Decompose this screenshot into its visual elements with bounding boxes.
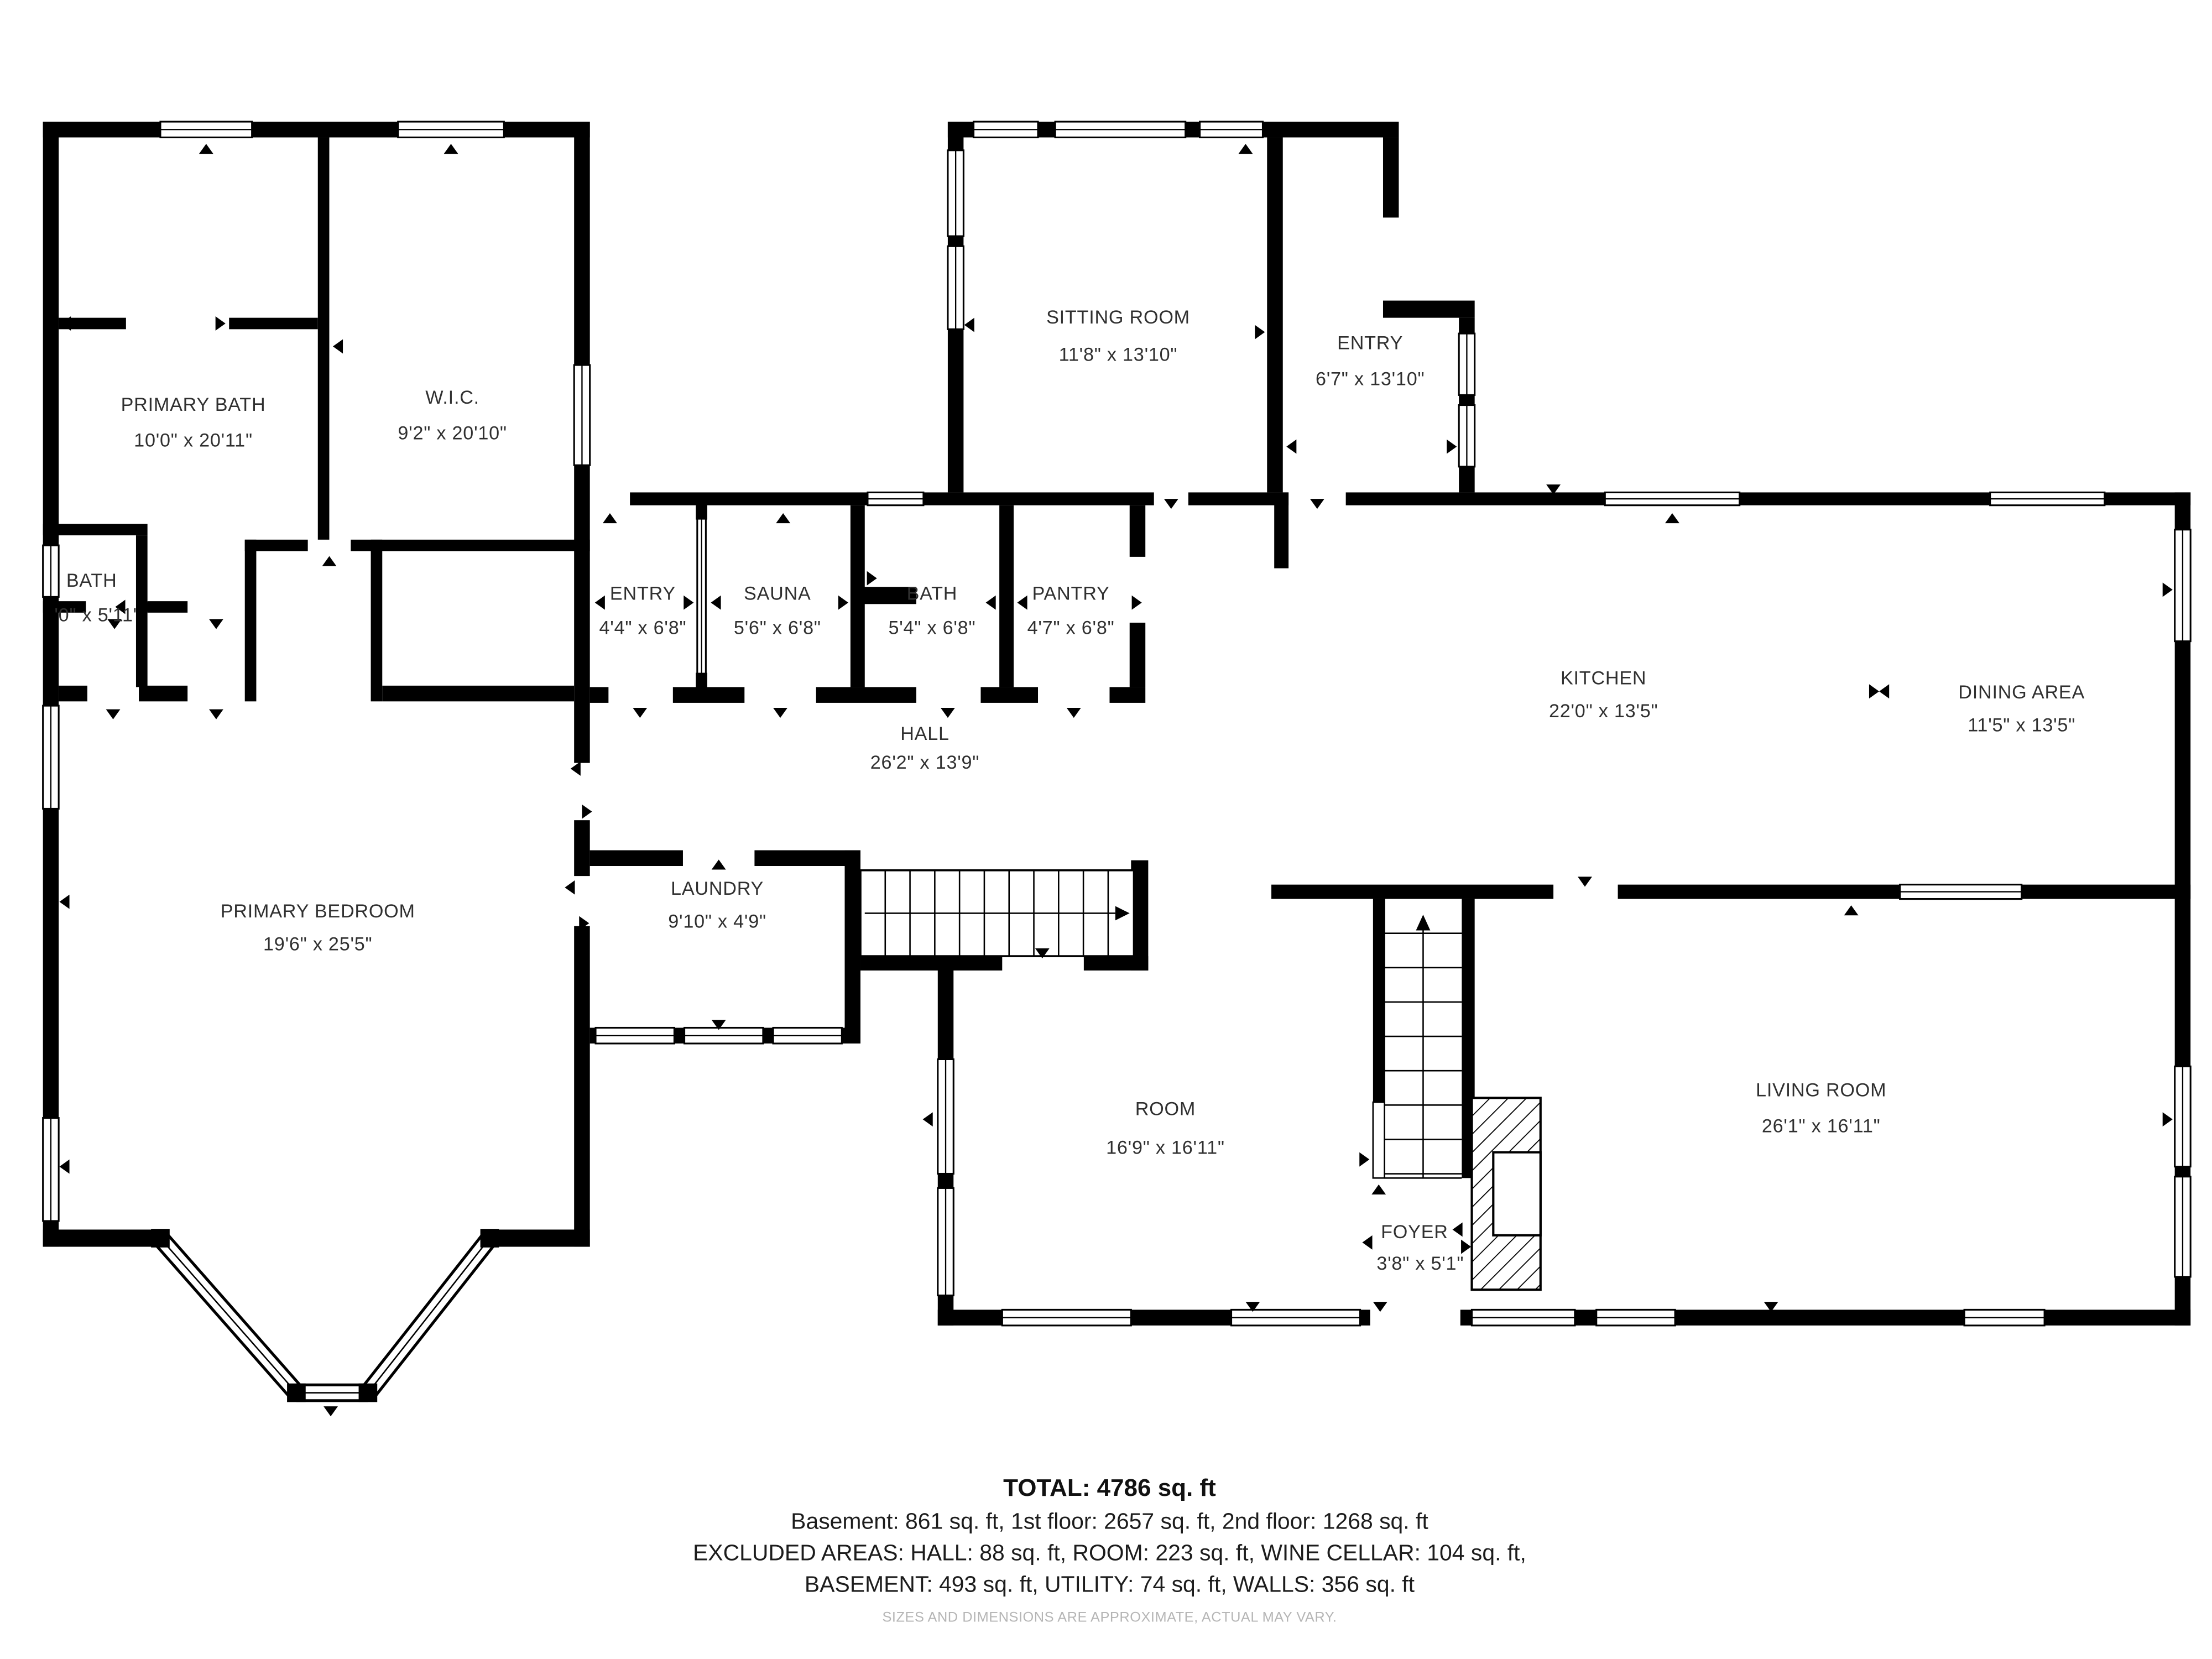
- summary-line1: Basement: 861 sq. ft, 1st floor: 2657 sq…: [791, 1508, 1428, 1533]
- door-arrow-icon: [1447, 440, 1457, 454]
- bay-joint: [287, 1384, 306, 1402]
- door-arrow-icon: [684, 596, 693, 610]
- door-arrow-icon: [106, 709, 121, 719]
- door-arrow-icon: [1310, 499, 1324, 509]
- door-arrow-icon: [712, 859, 726, 869]
- room-label-primary-bedroom: PRIMARY BEDROOM: [221, 901, 415, 922]
- door-arrow-icon: [582, 805, 592, 819]
- wall-segment: [43, 122, 590, 137]
- wall-segment: [999, 505, 1014, 687]
- room-label-laundry: LAUNDRY: [671, 878, 764, 899]
- wall-segment: [1188, 492, 1288, 505]
- door-arrow-icon: [1665, 513, 1679, 523]
- stair-direction-arrow-icon: [1416, 915, 1431, 930]
- fireplace: [1472, 1098, 1540, 1290]
- glass-partition-cap: [696, 505, 707, 520]
- door-arrow-icon: [1373, 1302, 1387, 1312]
- room-dims-kitchen: 22'0" x 13'5": [1549, 701, 1658, 722]
- door-arrow-icon: [1844, 905, 1859, 915]
- room-dims-primary-bedroom: 19'6" x 25'5": [263, 934, 372, 955]
- wall-segment: [245, 540, 257, 701]
- wall-segment: [351, 540, 589, 551]
- door-arrow-icon: [1132, 596, 1142, 610]
- room-label-hall: HALL: [900, 723, 950, 744]
- door-arrow-icon: [941, 708, 955, 718]
- door-arrow-icon: [209, 709, 223, 719]
- bay-window-mullion: [368, 1238, 489, 1393]
- room-dims-hall: 26'2" x 13'9": [870, 752, 979, 773]
- door-arrow-icon: [209, 619, 223, 629]
- wall-segment: [980, 687, 1038, 702]
- floor-plan: PRIMARY BATH 10'0" x 20'11" W.I.C. 9'2" …: [0, 0, 2212, 1659]
- door-arrow-icon: [1286, 440, 1296, 454]
- door-arrow-icon: [1017, 596, 1027, 610]
- door-arrow-icon: [324, 1406, 338, 1416]
- wall-segment: [574, 926, 589, 1247]
- room-label-wic: W.I.C.: [425, 387, 479, 408]
- wall-segment: [1109, 687, 1145, 702]
- wall-segment: [1373, 899, 1385, 1103]
- room-label-kitchen: KITCHEN: [1561, 667, 1646, 688]
- wall-segment: [229, 318, 318, 330]
- door-arrow-icon: [333, 339, 343, 353]
- disclaimer-text: SIZES AND DIMENSIONS ARE APPROXIMATE, AC…: [883, 1610, 1337, 1625]
- door-arrow-icon: [59, 895, 69, 909]
- door-arrow-icon: [1879, 684, 1889, 698]
- door-arrow-icon: [595, 596, 605, 610]
- door-arrow-icon: [322, 556, 337, 566]
- door-direction-markers: [59, 144, 2172, 1416]
- wall-segment: [1383, 137, 1399, 217]
- bay-joint: [481, 1229, 499, 1248]
- door-arrow-icon: [773, 708, 787, 718]
- wall-segment: [43, 1229, 160, 1246]
- bay-joint: [151, 1229, 170, 1248]
- wall-segment: [1383, 301, 1475, 318]
- wall-segment: [245, 540, 308, 551]
- door-arrow-icon: [1869, 684, 1879, 698]
- wall-segment: [590, 687, 609, 702]
- door-arrow-icon: [964, 318, 974, 332]
- door-arrow-icon: [1461, 1240, 1471, 1254]
- room-dims-sauna: 5'6" x 6'8": [734, 618, 821, 639]
- room-dims-foyer: 3'8" x 5'1": [1376, 1253, 1464, 1274]
- room-label-room: ROOM: [1135, 1098, 1196, 1119]
- room-dims-bath-mid: 5'4" x 6'8": [888, 618, 975, 639]
- room-label-dining-area: DINING AREA: [1958, 682, 2085, 703]
- room-label-pantry: PANTRY: [1032, 583, 1110, 604]
- wall-segment: [1130, 623, 1145, 687]
- door-arrow-icon: [711, 596, 721, 610]
- door-arrow-icon: [216, 316, 226, 331]
- summary-line3: BASEMENT: 493 sq. ft, UTILITY: 74 sq. ft…: [805, 1571, 1415, 1597]
- door-arrow-icon: [1255, 325, 1265, 340]
- summary-total: TOTAL: 4786 sq. ft: [1003, 1474, 1216, 1501]
- wall-segment: [1271, 885, 1553, 899]
- room-dims-entry-small: 4'4" x 6'8": [599, 618, 687, 639]
- wall-segment: [574, 820, 589, 876]
- room-label-primary-bath: PRIMARY BATH: [121, 394, 266, 415]
- door-arrow-icon: [1238, 144, 1253, 154]
- bay-window: [151, 1229, 499, 1402]
- door-arrow-icon: [565, 880, 575, 895]
- glass-partition-cap: [696, 673, 707, 687]
- door-arrow-icon: [1164, 499, 1178, 509]
- wall-segment: [816, 687, 916, 702]
- wall-segment: [1267, 137, 1282, 492]
- wall-segment: [673, 687, 744, 702]
- wall-segment: [318, 137, 330, 539]
- wall-segment: [754, 851, 860, 866]
- bay-window-mullion: [160, 1238, 296, 1393]
- door-arrow-icon: [867, 571, 877, 586]
- door-arrow-icon: [986, 596, 996, 610]
- room-labels-layer: PRIMARY BATH 10'0" x 20'11" W.I.C. 9'2" …: [54, 307, 2085, 1274]
- wall-segment: [845, 851, 860, 1044]
- door-arrow-icon: [199, 144, 213, 154]
- room-dims-pantry: 4'7" x 6'8": [1027, 618, 1115, 639]
- door-arrow-icon: [1359, 1152, 1369, 1167]
- wall-segment: [139, 686, 187, 701]
- wall-segment: [43, 524, 148, 535]
- room-dims-sitting-room: 11'8" x 13'10": [1059, 344, 1178, 365]
- door-arrow-icon: [923, 1112, 933, 1126]
- room-label-bath-mid: BATH: [907, 583, 958, 604]
- wall-segment: [382, 686, 574, 701]
- room-label-entry-main: ENTRY: [1337, 333, 1403, 354]
- door-arrow-icon: [603, 513, 617, 523]
- wall-segment: [1130, 505, 1145, 557]
- room-dims-laundry: 9'10" x 4'9": [668, 911, 766, 932]
- summary-block: TOTAL: 4786 sq. ft Basement: 861 sq. ft,…: [693, 1474, 1526, 1625]
- door-arrow-icon: [571, 761, 581, 776]
- wall-segment: [1274, 492, 1288, 568]
- room-label-foyer: FOYER: [1381, 1222, 1448, 1243]
- wall-segment: [43, 122, 59, 1247]
- bay-joint: [359, 1384, 378, 1402]
- wall-segment: [489, 1229, 589, 1246]
- door-arrow-icon: [1453, 1223, 1463, 1237]
- door-arrow-icon: [838, 596, 848, 610]
- door-arrow-icon: [59, 1160, 69, 1174]
- door-arrow-icon: [776, 513, 790, 523]
- walls-over-layer: [136, 535, 148, 687]
- door-arrow-icon: [2163, 582, 2173, 597]
- door-arrow-icon: [1362, 1235, 1372, 1250]
- wall-segment-over-text: [136, 535, 148, 687]
- summary-line2: EXCLUDED AREAS: HALL: 88 sq. ft, ROOM: 2…: [693, 1540, 1526, 1565]
- door-arrow-icon: [633, 708, 647, 718]
- fireplace-firebox: [1493, 1152, 1540, 1235]
- room-label-entry-small: ENTRY: [610, 583, 676, 604]
- room-label-bath-small: BATH: [66, 570, 117, 591]
- wall-segment: [1084, 956, 1149, 971]
- room-dims-bath-small: '0" x 5'11": [54, 604, 140, 625]
- door-arrow-icon: [2163, 1112, 2173, 1126]
- door-arrow-icon: [444, 144, 458, 154]
- room-label-sitting-room: SITTING ROOM: [1046, 307, 1190, 328]
- stair-railing: [1373, 1102, 1385, 1178]
- room-dims-dining-area: 11'5" x 13'5": [1968, 715, 2075, 736]
- room-dims-wic: 9'2" x 20'10": [398, 423, 507, 444]
- room-dims-entry-main: 6'7" x 13'10": [1316, 368, 1425, 389]
- wall-segment: [860, 956, 1002, 971]
- door-arrow-icon: [1578, 877, 1592, 886]
- floor-plan-page: PRIMARY BATH 10'0" x 20'11" W.I.C. 9'2" …: [0, 0, 2212, 1659]
- door-arrow-icon: [1067, 708, 1081, 718]
- wall-segment: [59, 686, 87, 701]
- wall-segment: [590, 851, 683, 866]
- room-dims-living-room: 26'1" x 16'11": [1762, 1115, 1881, 1136]
- room-label-sauna: SAUNA: [744, 583, 811, 604]
- wall-segment: [371, 540, 383, 701]
- room-dims-room: 16'9" x 16'11": [1106, 1137, 1225, 1158]
- room-dims-primary-bath: 10'0" x 20'11": [134, 430, 253, 451]
- room-label-living-room: LIVING ROOM: [1756, 1080, 1886, 1101]
- door-arrow-icon: [1371, 1185, 1386, 1194]
